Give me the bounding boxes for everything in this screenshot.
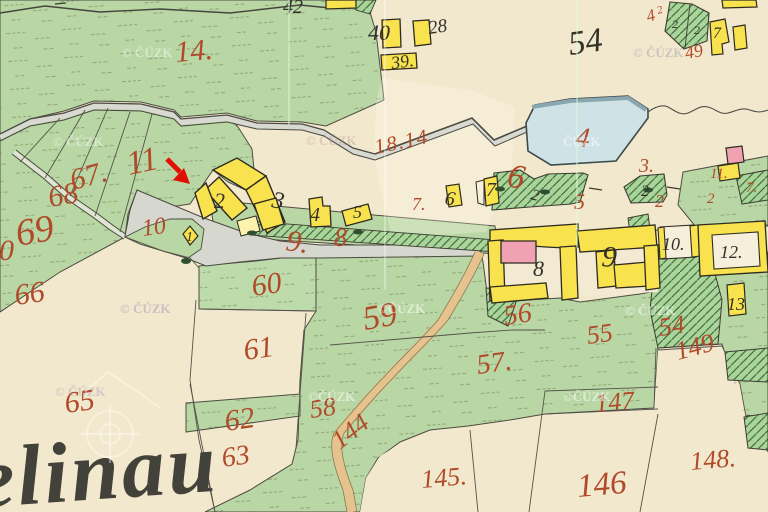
- svg-text:© ČÚZK: © ČÚZK: [625, 303, 676, 318]
- svg-text:© ČÚZK: © ČÚZK: [306, 133, 357, 148]
- svg-text:8: 8: [533, 256, 544, 281]
- svg-text:40: 40: [368, 20, 390, 45]
- svg-text:©ČÚZK: ©ČÚZK: [378, 301, 426, 316]
- svg-text:4: 4: [310, 204, 320, 226]
- svg-text:7: 7: [713, 25, 722, 42]
- svg-text:7.: 7.: [746, 180, 757, 196]
- svg-text:2: 2: [641, 183, 649, 200]
- svg-text:56: 56: [502, 297, 534, 332]
- svg-text:3.: 3.: [638, 155, 654, 177]
- svg-text:69: 69: [12, 207, 57, 255]
- svg-text:10.: 10.: [662, 234, 685, 254]
- svg-text:8: 8: [334, 223, 347, 252]
- svg-text:5: 5: [574, 189, 585, 214]
- svg-text:145.: 145.: [420, 461, 468, 494]
- svg-text:14.: 14.: [174, 33, 214, 69]
- svg-text:9: 9: [600, 240, 618, 274]
- svg-text:2: 2: [694, 23, 700, 37]
- svg-text:55: 55: [585, 318, 615, 350]
- svg-text:61: 61: [241, 330, 275, 367]
- svg-text:39.: 39.: [389, 50, 415, 73]
- svg-text:63: 63: [220, 439, 252, 474]
- svg-text:13: 13: [727, 294, 745, 314]
- svg-text:12.: 12.: [720, 242, 743, 262]
- svg-text:28: 28: [427, 15, 449, 39]
- svg-text:ČÚZK: ČÚZK: [563, 134, 601, 149]
- svg-text:1: 1: [186, 230, 193, 245]
- svg-text:© ČÚZK: © ČÚZK: [53, 134, 104, 149]
- svg-text:42: 42: [283, 0, 303, 18]
- svg-text:© ČÚZK: © ČÚZK: [633, 45, 684, 60]
- svg-text:54: 54: [566, 22, 605, 63]
- svg-text:66: 66: [12, 275, 46, 312]
- svg-text:©ČÚZK: ©ČÚZK: [563, 389, 611, 404]
- svg-text:57.: 57.: [475, 345, 514, 381]
- svg-text:2: 2: [672, 17, 678, 31]
- svg-text:49: 49: [683, 40, 704, 63]
- svg-text:11.: 11.: [710, 166, 728, 182]
- svg-text:© ČÚZK: © ČÚZK: [55, 384, 106, 399]
- svg-text:2: 2: [707, 191, 715, 207]
- svg-text:68: 68: [45, 176, 80, 214]
- svg-text:70: 70: [0, 234, 14, 267]
- svg-text:146: 146: [576, 465, 629, 505]
- svg-text:© ČÚZK: © ČÚZK: [120, 301, 171, 316]
- svg-text:7: 7: [486, 179, 497, 201]
- svg-text:5: 5: [353, 202, 362, 222]
- svg-text:9.: 9.: [284, 224, 311, 260]
- svg-text:148.: 148.: [689, 443, 737, 476]
- svg-text:10: 10: [140, 213, 167, 242]
- svg-text:7.: 7.: [412, 194, 426, 214]
- svg-text:60: 60: [249, 266, 283, 303]
- svg-text:2: 2: [214, 188, 225, 213]
- svg-text:©ČÚZK: ©ČÚZK: [308, 389, 356, 404]
- svg-text:62: 62: [222, 401, 256, 438]
- svg-text:2: 2: [655, 191, 664, 211]
- svg-text:© ČÚZK: © ČÚZK: [122, 45, 173, 60]
